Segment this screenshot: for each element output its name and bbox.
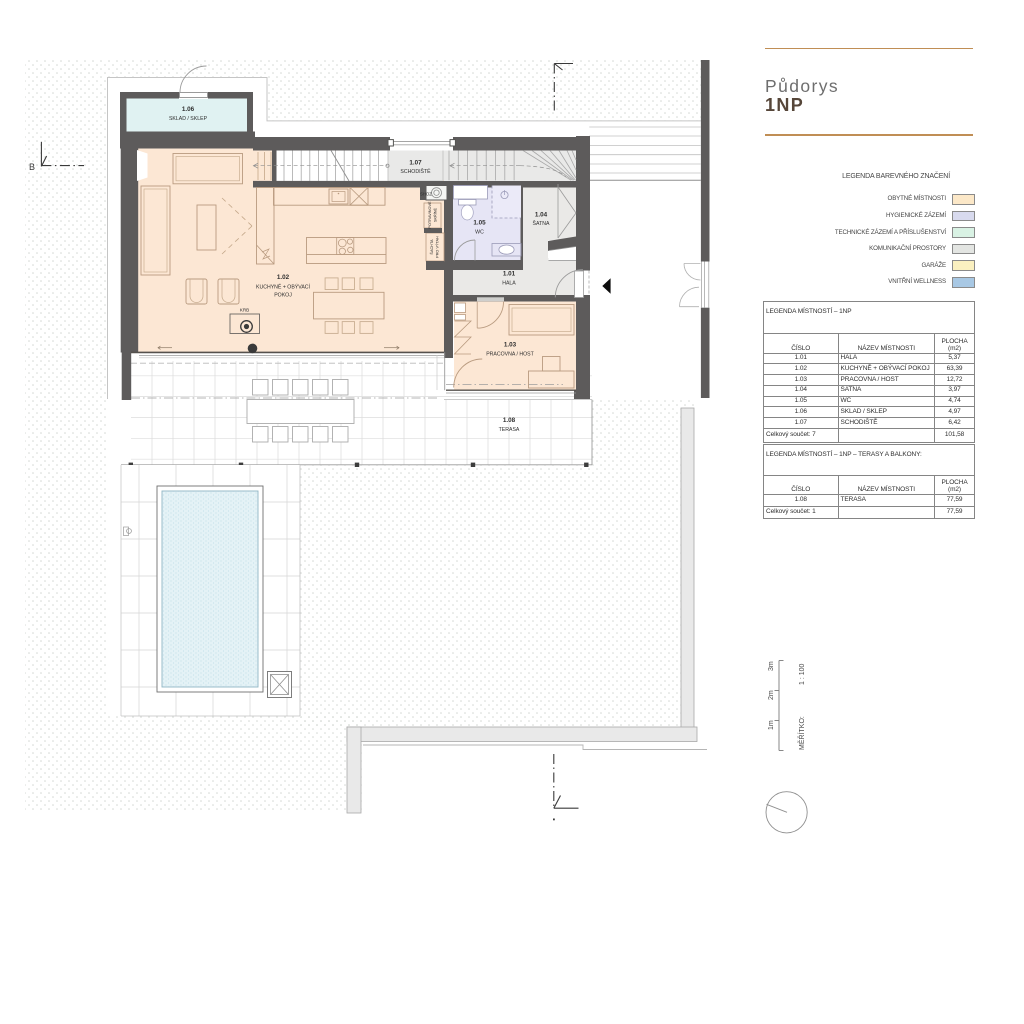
svg-text:SKŘÍNĚ: SKŘÍNĚ bbox=[433, 207, 438, 222]
svg-text:KUCHYNĚ + OBÝVACÍ: KUCHYNĚ + OBÝVACÍ bbox=[256, 283, 311, 291]
svg-text:PRO VÝTAH: PRO VÝTAH bbox=[436, 236, 440, 258]
svg-text:1 : 100: 1 : 100 bbox=[799, 663, 806, 685]
svg-text:3m: 3m bbox=[768, 661, 775, 671]
svg-text:MĚŘÍTKO:: MĚŘÍTKO: bbox=[797, 716, 806, 750]
svg-text:1.05: 1.05 bbox=[473, 220, 486, 227]
svg-text:1.04: 1.04 bbox=[535, 212, 548, 219]
svg-text:TERASA: TERASA bbox=[499, 427, 520, 433]
svg-text:POTRAVINOVÉ: POTRAVINOVÉ bbox=[427, 201, 432, 229]
svg-text:HALA: HALA bbox=[502, 281, 516, 287]
svg-text:1.02: 1.02 bbox=[277, 274, 290, 281]
svg-text:SCHODIŠTĚ: SCHODIŠTĚ bbox=[400, 167, 431, 175]
svg-text:SKLAD / SKLEP: SKLAD / SKLEP bbox=[169, 116, 208, 122]
svg-text:1.07: 1.07 bbox=[409, 160, 422, 167]
svg-text:POKOJ: POKOJ bbox=[274, 293, 292, 299]
svg-text:1.06: 1.06 bbox=[182, 106, 195, 113]
svg-text:ŠACHTA: ŠACHTA bbox=[429, 239, 434, 255]
svg-text:ŠATNA: ŠATNA bbox=[533, 220, 550, 227]
svg-text:PRACOVNA / HOST: PRACOVNA / HOST bbox=[486, 352, 534, 358]
svg-text:1.01: 1.01 bbox=[503, 271, 516, 278]
svg-text:WC: WC bbox=[475, 230, 484, 236]
svg-text:1.03: 1.03 bbox=[504, 342, 517, 349]
svg-text:2m: 2m bbox=[768, 690, 775, 700]
svg-text:B: B bbox=[29, 162, 35, 172]
svg-text:1m: 1m bbox=[768, 720, 775, 730]
svg-text:KRB: KRB bbox=[240, 308, 249, 313]
svg-text:SHOZ: SHOZ bbox=[420, 192, 432, 197]
svg-text:1.08: 1.08 bbox=[503, 417, 516, 424]
